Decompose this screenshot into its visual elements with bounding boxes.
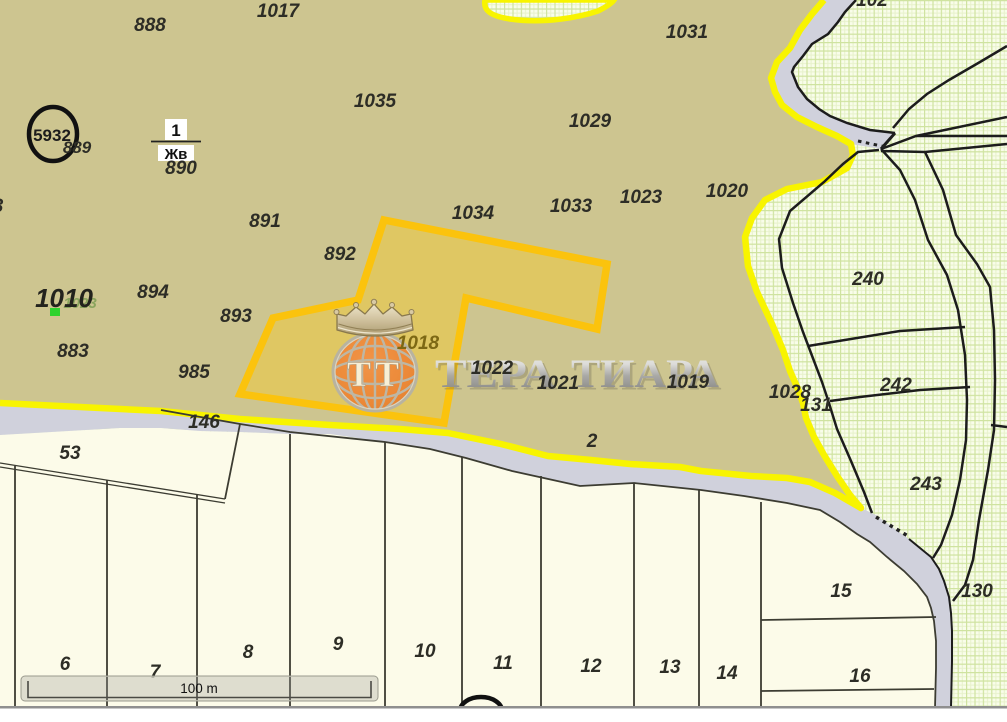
svg-text:889: 889 — [63, 138, 92, 157]
svg-text:14: 14 — [716, 663, 738, 684]
svg-text:1022: 1022 — [471, 358, 514, 379]
svg-text:1010: 1010 — [35, 283, 93, 313]
svg-text:100 m: 100 m — [180, 681, 218, 696]
svg-text:888: 888 — [134, 15, 166, 36]
svg-text:985: 985 — [178, 362, 210, 383]
svg-text:12: 12 — [580, 656, 602, 677]
svg-text:16: 16 — [849, 666, 871, 687]
svg-text:130: 130 — [961, 581, 993, 602]
svg-text:TT: TT — [347, 354, 403, 394]
svg-text:1033: 1033 — [550, 196, 593, 217]
svg-text:1020: 1020 — [706, 181, 749, 202]
svg-text:146: 146 — [188, 412, 220, 433]
svg-text:1018: 1018 — [397, 333, 440, 354]
svg-text:9: 9 — [333, 634, 344, 655]
svg-text:242: 242 — [879, 375, 912, 396]
svg-text:1029: 1029 — [569, 111, 612, 132]
svg-text:3: 3 — [0, 196, 4, 217]
svg-text:8: 8 — [243, 642, 254, 663]
svg-text:15: 15 — [830, 581, 852, 602]
svg-text:243: 243 — [909, 474, 942, 495]
svg-text:102: 102 — [856, 0, 888, 11]
svg-text:1035: 1035 — [354, 91, 397, 112]
svg-text:131: 131 — [800, 395, 832, 416]
svg-text:1034: 1034 — [452, 203, 495, 224]
svg-text:2: 2 — [586, 431, 598, 452]
svg-text:1021: 1021 — [537, 373, 579, 394]
svg-text:6: 6 — [60, 654, 71, 675]
svg-text:1017: 1017 — [257, 1, 301, 22]
svg-text:890: 890 — [165, 158, 197, 179]
svg-text:883: 883 — [57, 341, 89, 362]
svg-text:892: 892 — [324, 244, 356, 265]
svg-text:891: 891 — [249, 211, 281, 232]
svg-text:240: 240 — [851, 269, 884, 290]
svg-text:893: 893 — [220, 306, 252, 327]
svg-text:1031: 1031 — [666, 22, 708, 43]
svg-text:10: 10 — [414, 641, 436, 662]
svg-text:53: 53 — [59, 443, 81, 464]
svg-text:1023: 1023 — [620, 187, 663, 208]
svg-text:1019: 1019 — [667, 372, 710, 393]
svg-text:13: 13 — [659, 657, 681, 678]
svg-text:11: 11 — [493, 653, 513, 674]
svg-text:894: 894 — [137, 282, 169, 303]
svg-text:1: 1 — [171, 121, 180, 140]
